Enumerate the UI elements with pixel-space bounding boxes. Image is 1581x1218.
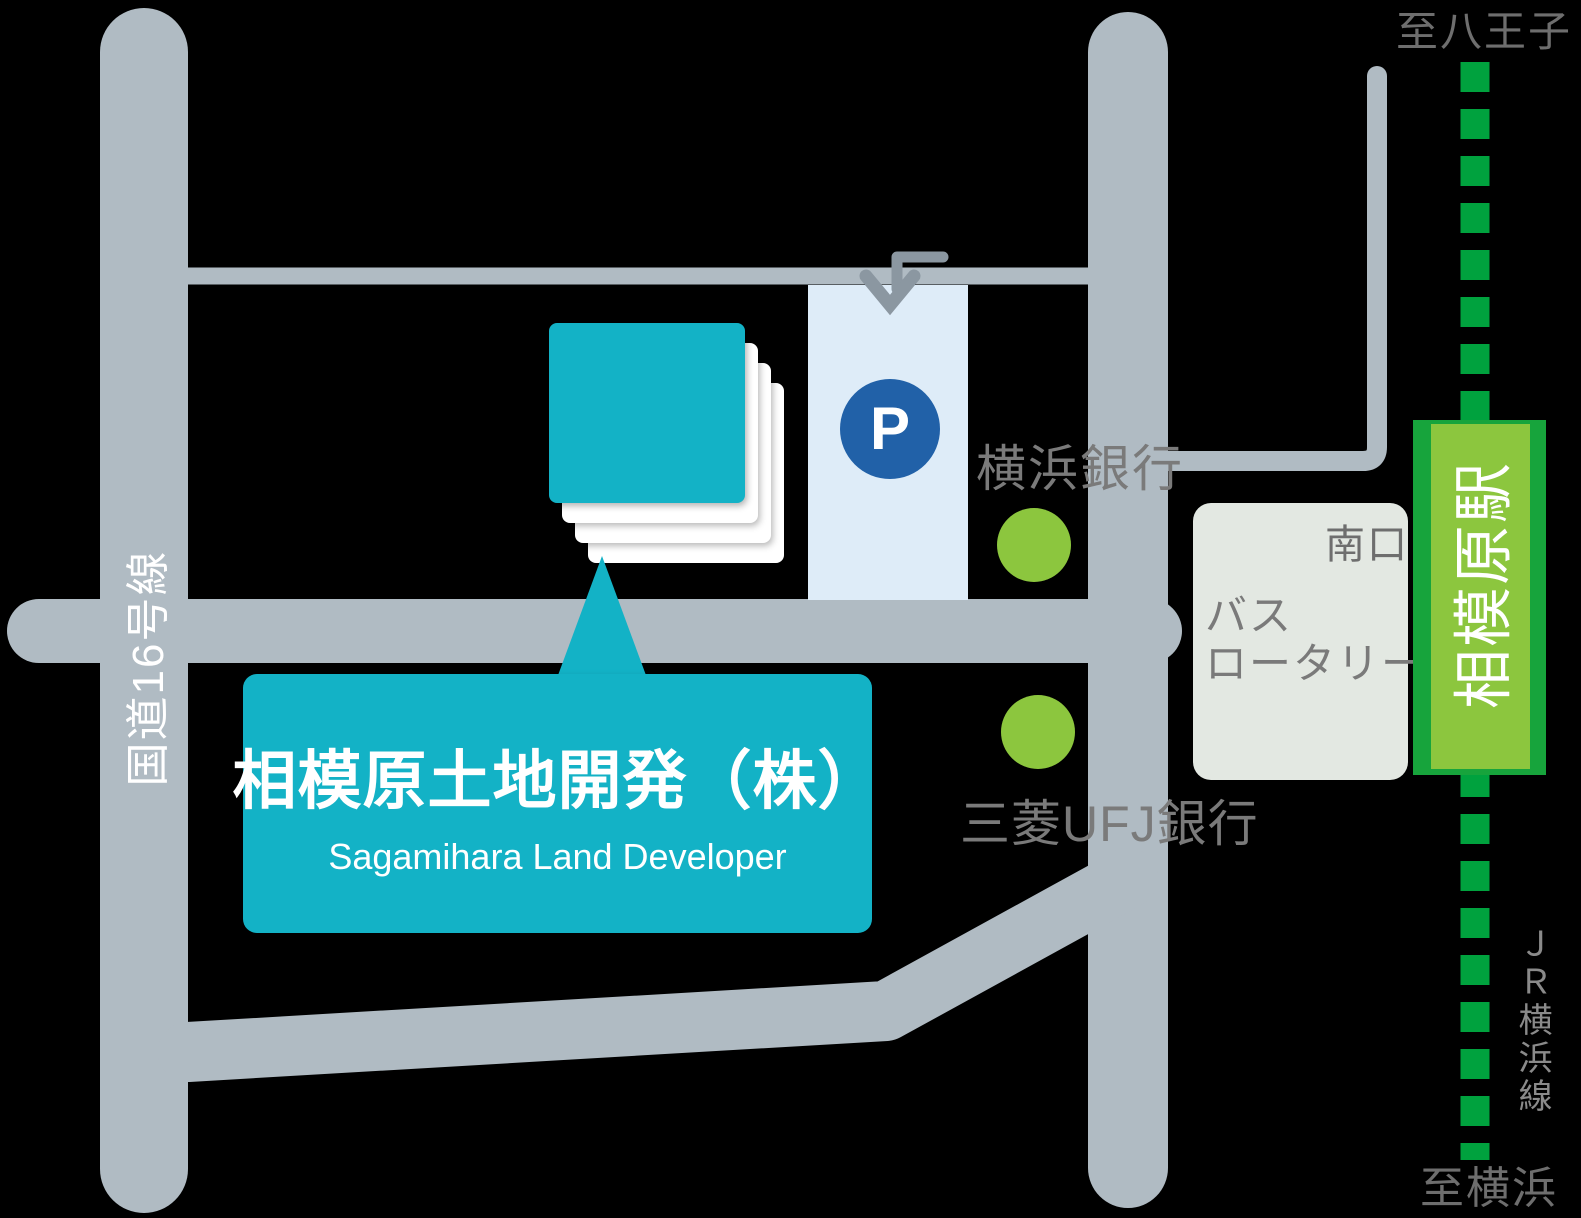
company-building — [549, 323, 745, 503]
parking-p-icon: P — [870, 399, 910, 459]
company-name: 相模原土地開発（株） — [233, 730, 883, 822]
parking-badge: P — [840, 379, 940, 479]
company-name-en: Sagamihara Land Developer — [328, 836, 786, 878]
bus-rotary-label-line2: ロータリー — [1205, 640, 1425, 688]
bus-rotary-label: バス ロータリー — [1205, 592, 1425, 689]
station-label: 相模原駅 — [1436, 461, 1523, 709]
road-rail-side — [1145, 76, 1377, 461]
mufg-bank-dot — [1001, 695, 1075, 769]
company-callout: 相模原土地開発（株） Sagamihara Land Developer — [243, 674, 872, 933]
direction-north-label: 至八王子 — [1396, 8, 1572, 56]
direction-south-label: 至横浜 — [1420, 1164, 1558, 1215]
jr-line-label: ＪＲ横浜線 — [1512, 926, 1551, 1116]
bus-rotary-label-line1: バス — [1205, 592, 1425, 640]
mufg-bank-label: 三菱UFJ銀行 — [960, 796, 1259, 854]
yokohama-bank-label: 横浜銀行 — [976, 441, 1184, 499]
route16-label: 国道16号線 — [112, 550, 176, 787]
access-map: バス ロータリー 南口 相模原駅 横浜銀行 三菱UFJ銀行 相模原土地開発（株）… — [0, 0, 1581, 1218]
yokohama-bank-dot — [997, 508, 1071, 582]
south-exit-label: 南口 — [1325, 522, 1409, 568]
